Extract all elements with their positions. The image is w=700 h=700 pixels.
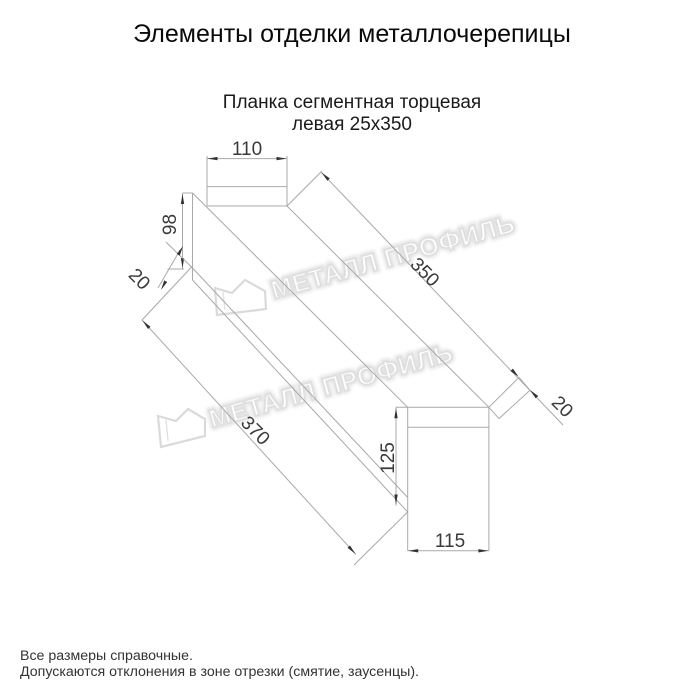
svg-text:115: 115 — [435, 531, 465, 552]
svg-text:110: 110 — [232, 139, 262, 160]
svg-text:125: 125 — [378, 442, 399, 474]
svg-text:98: 98 — [160, 214, 181, 235]
svg-text:20: 20 — [124, 265, 154, 295]
svg-text:20: 20 — [547, 392, 577, 422]
